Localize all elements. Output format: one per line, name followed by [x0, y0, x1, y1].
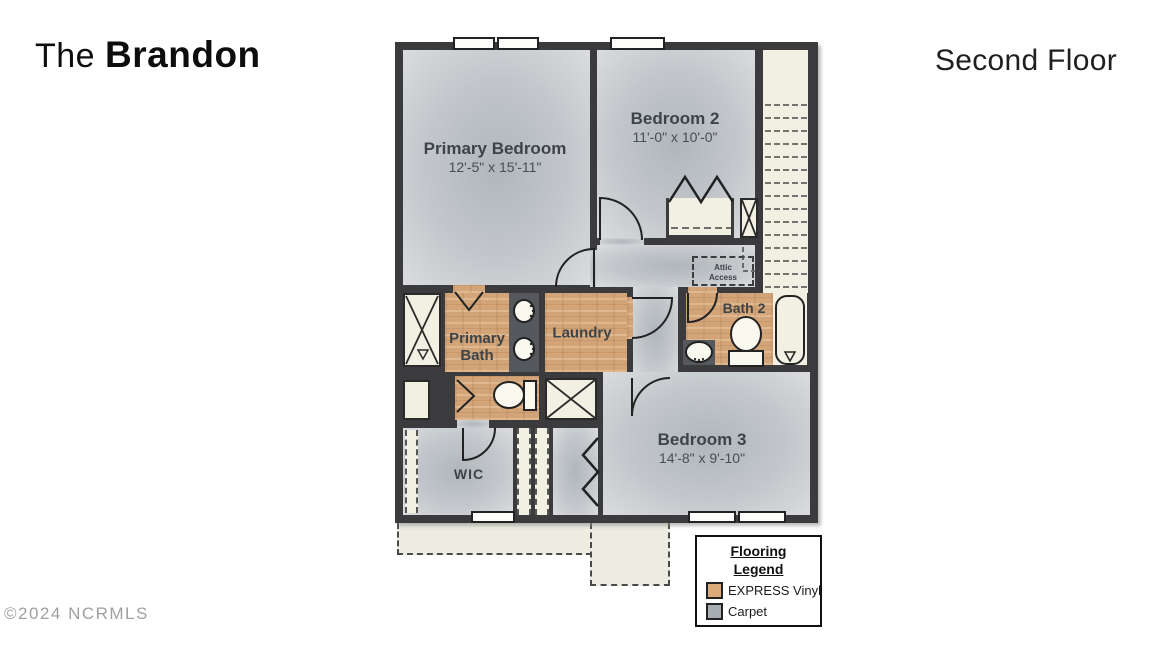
bedroom2-closet [666, 198, 734, 238]
door-gap-bedroom2 [600, 238, 644, 245]
bath2-vanity [683, 340, 715, 365]
window-primary-bedroom-1 [453, 37, 495, 50]
floor-label: Second Floor [935, 44, 1117, 78]
chase-box [740, 198, 758, 238]
door-gap-laundry [627, 297, 633, 339]
staircase [763, 50, 808, 293]
floor-plan-page: The Brandon Second Floor ©2024 NCRMLS [0, 0, 1150, 651]
linen-closet [403, 380, 430, 420]
double-vanity [509, 293, 539, 372]
legend-item-vinyl: EXPRESS Vinyl [706, 582, 820, 599]
label-bath2: Bath 2 [723, 300, 766, 316]
window-bedroom3-1 [688, 511, 736, 523]
plan-title: The Brandon [35, 34, 261, 76]
plan-title-name: Brandon [105, 34, 261, 75]
door-gap-primary-bedroom [590, 250, 597, 287]
label-bedroom2: Bedroom 2 11'-0" x 10'-0" [631, 109, 720, 145]
tub-alcove [773, 293, 807, 365]
floor-plan: Attic Access [395, 40, 820, 540]
wic-shelf-left [405, 430, 418, 513]
shower [403, 293, 441, 367]
window-wic [471, 511, 515, 523]
carpet-swatch-icon [706, 603, 723, 620]
plan-title-prefix: The [35, 37, 105, 75]
wic-shelf-right [517, 428, 531, 515]
copyright-text: ©2024 NCRMLS [4, 604, 149, 624]
window-primary-bedroom-2 [497, 37, 539, 50]
window-bedroom2 [610, 37, 665, 50]
label-wic: WIC [454, 466, 484, 482]
legend-item-carpet: Carpet [706, 603, 820, 620]
bedroom3-closet-shelf [535, 428, 549, 515]
window-bedroom3-2 [738, 511, 786, 523]
label-bedroom3: Bedroom 3 14'-8" x 9'-10" [658, 430, 747, 466]
attic-access-label: Attic Access [694, 263, 752, 282]
legend-title: Flooring Legend [697, 543, 820, 578]
bedroom3-closet [553, 428, 598, 515]
door-gap-primary-bath [453, 285, 485, 293]
primary-toilet-room [455, 376, 539, 420]
label-primary-bedroom: Primary Bedroom 12'-5" x 15'-11" [424, 139, 567, 175]
vinyl-swatch-icon [706, 582, 723, 599]
label-primary-bath: Primary Bath [449, 330, 505, 365]
attic-access-box: Attic Access [692, 256, 754, 286]
hall-closet [545, 378, 597, 420]
flooring-legend: Flooring Legend EXPRESS Vinyl Carpet [695, 535, 822, 627]
hall-corridor [633, 287, 678, 377]
door-gap-wic [457, 420, 489, 428]
label-laundry: Laundry [552, 324, 611, 341]
